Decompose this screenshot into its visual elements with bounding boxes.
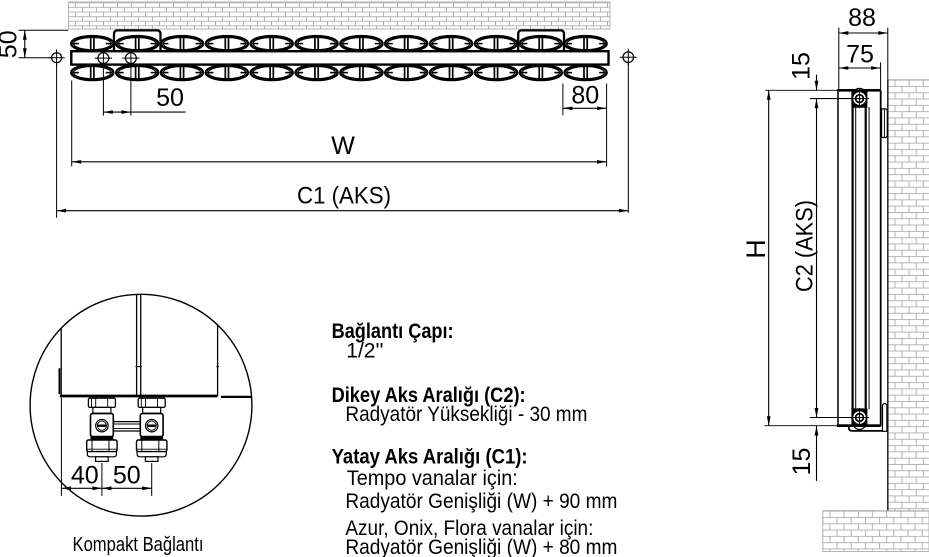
svg-text:88: 88: [848, 4, 876, 32]
svg-text:1/2'': 1/2'': [346, 340, 383, 363]
svg-text:40: 40: [71, 462, 99, 490]
svg-text:C1 (AKS): C1 (AKS): [297, 182, 391, 209]
svg-text:Tempo vanalar için:: Tempo vanalar için:: [347, 467, 518, 490]
svg-text:15: 15: [788, 52, 816, 80]
svg-text:75: 75: [846, 41, 874, 69]
svg-text:50: 50: [113, 462, 141, 490]
svg-text:Radyatör Genişliği (W) + 80 mm: Radyatör Genişliği (W) + 80 mm: [345, 536, 617, 557]
svg-text:80: 80: [571, 82, 599, 110]
svg-text:Yatay Aks Aralığı (C1):: Yatay Aks Aralığı (C1):: [332, 446, 528, 469]
svg-text:Kompakt Bağlantı: Kompakt Bağlantı: [73, 533, 204, 556]
svg-text:Radyatör Genişliği (W) + 90 mm: Radyatör Genişliği (W) + 90 mm: [345, 490, 617, 513]
svg-text:50: 50: [156, 84, 184, 112]
svg-text:Radyatör Yüksekliği - 30 mm: Radyatör Yüksekliği - 30 mm: [345, 403, 587, 426]
svg-text:W: W: [331, 132, 355, 160]
svg-text:H: H: [741, 239, 771, 259]
svg-text:50: 50: [0, 30, 23, 58]
svg-text:15: 15: [788, 448, 816, 476]
svg-text:C2 (AKS): C2 (AKS): [792, 200, 819, 292]
